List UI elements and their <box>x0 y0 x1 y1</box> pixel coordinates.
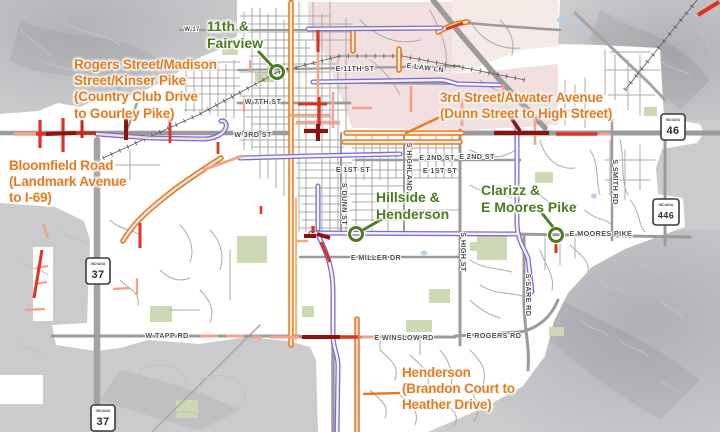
svg-text:INDIANA: INDIANA <box>666 118 681 122</box>
street-label: W 17 <box>184 27 200 33</box>
svg-text:46: 46 <box>666 125 679 137</box>
street-label: E 2ND ST <box>459 152 495 161</box>
street-label: E 2ND ST <box>419 153 455 162</box>
street-label: W 7TH ST <box>245 97 282 106</box>
street-label: S DUNN ST <box>340 183 349 226</box>
street-label: E 1ST ST <box>336 165 371 174</box>
street-label: E MILLER DR <box>351 253 402 262</box>
map-canvas: W 7TH ST W 3RD ST E 11TH ST E LAW LN E 2… <box>0 0 720 432</box>
svg-text:37: 37 <box>91 269 104 281</box>
svg-text:INDIANA: INDIANA <box>91 262 106 266</box>
svg-text:INDIANA: INDIANA <box>659 203 674 207</box>
shield-sr37-north: INDIANA 37 <box>86 258 110 284</box>
shield-sr46: INDIANA 46 <box>661 114 685 140</box>
map-image: W 7TH ST W 3RD ST E 11TH ST E LAW LN E 2… <box>0 0 720 432</box>
street-label: E ROGERS RD <box>467 331 522 340</box>
street-label: E WINSLOW RD <box>374 333 434 342</box>
street-label: E 11TH ST <box>336 64 375 73</box>
street-label: S SMITH RD <box>611 159 620 205</box>
svg-text:INDIANA: INDIANA <box>96 409 111 413</box>
street-label: S SARE RD <box>524 274 533 317</box>
street-label: W TAPP RD <box>145 331 188 340</box>
shield-sr37-south: INDIANA 37 <box>91 405 115 431</box>
street-label: W 3RD ST <box>234 130 272 139</box>
street-label: S HIGH ST <box>459 232 468 272</box>
svg-text:37: 37 <box>96 416 109 428</box>
svg-text:446: 446 <box>658 211 674 221</box>
street-label: S HIGHLAND <box>405 143 414 192</box>
street-label: E 1ST ST <box>423 166 458 175</box>
street-label: E MOORES PIKE <box>570 229 633 238</box>
shield-sr446: INDIANA 446 <box>653 199 679 225</box>
